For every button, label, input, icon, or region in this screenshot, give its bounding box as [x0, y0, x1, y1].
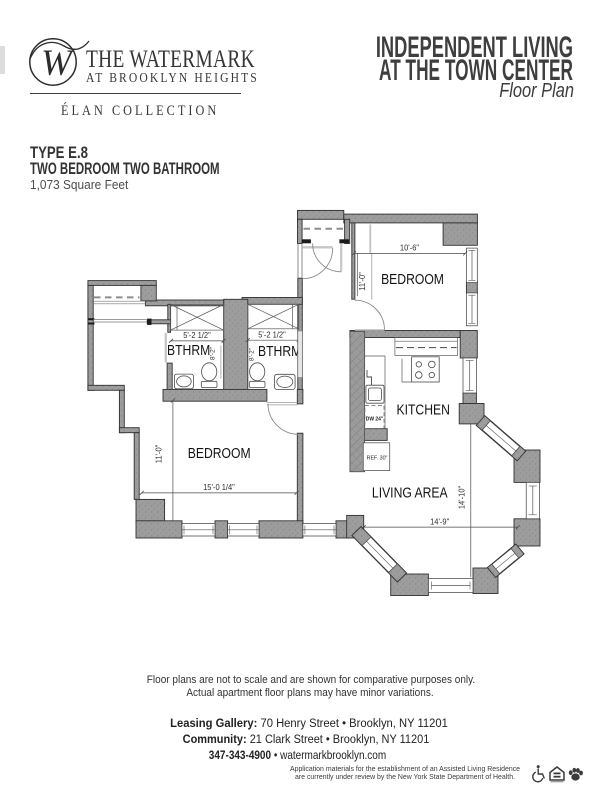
svg-text:5'-2 1/2": 5'-2 1/2": [258, 330, 286, 339]
svg-text:8'-2": 8'-2": [249, 347, 256, 361]
svg-text:DW 24": DW 24": [366, 416, 384, 422]
svg-text:15'-0 1/4": 15'-0 1/4": [203, 483, 235, 492]
svg-text:8'-2": 8'-2": [210, 346, 217, 360]
svg-text:5'-2 1/2": 5'-2 1/2": [183, 331, 211, 340]
svg-text:14'-9": 14'-9": [430, 517, 449, 526]
svg-text:REF. 30": REF. 30": [367, 455, 388, 461]
svg-text:BEDROOM: BEDROOM: [188, 445, 251, 461]
svg-text:10'-6": 10'-6": [400, 243, 419, 252]
svg-text:BTHRM: BTHRM: [167, 342, 210, 358]
svg-text:14'-10": 14'-10": [457, 486, 466, 510]
svg-text:BEDROOM: BEDROOM: [381, 271, 444, 287]
svg-text:BTHRM: BTHRM: [258, 343, 301, 359]
svg-text:11'-0": 11'-0": [358, 272, 367, 291]
svg-text:LIVING AREA: LIVING AREA: [372, 485, 448, 501]
svg-text:KITCHEN: KITCHEN: [396, 402, 449, 418]
svg-text:11'-0": 11'-0": [154, 444, 163, 463]
